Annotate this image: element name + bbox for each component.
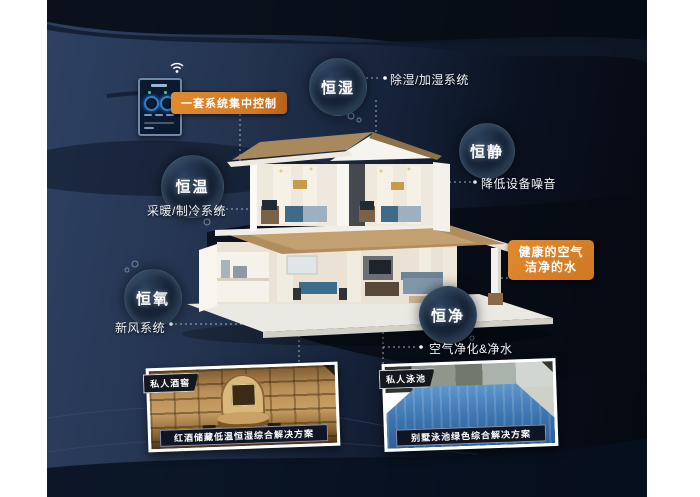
bubble-label: 恒静	[470, 141, 504, 162]
panel-dial-left	[144, 96, 159, 111]
panel-readout	[166, 114, 174, 116]
pool-tag: 私人泳池	[379, 368, 436, 389]
infographic-page: 一套系统集中控制 健康的空气 洁净的水 恒湿 恒静 恒温 恒氧 恒净 除湿/加湿…	[0, 0, 700, 497]
bubble-constant-quiet: 恒静	[459, 123, 515, 179]
panel-readout	[155, 114, 163, 116]
wifi-icon	[169, 60, 185, 74]
bubble-constant-humidity: 恒湿	[309, 58, 367, 116]
photo-corner-curl	[324, 365, 335, 376]
wine-tag: 私人酒窖	[143, 373, 200, 394]
panel-readout	[144, 114, 152, 116]
note-heating-cooling-system: 采暖/制冷系统	[147, 202, 226, 219]
callout-line-1: 健康的空气	[510, 245, 592, 260]
wine-art	[231, 383, 256, 406]
bubble-label: 恒湿	[321, 77, 355, 98]
healthy-air-water-callout: 健康的空气 洁净的水	[508, 240, 594, 280]
panel-led	[164, 91, 167, 94]
note-fresh-air-system: 新风系统	[115, 319, 165, 336]
callout-line-2: 洁净的水	[510, 260, 592, 275]
panel-divider	[144, 122, 174, 124]
panel-title-bar	[151, 84, 167, 87]
panel-led	[148, 91, 151, 94]
central-control-chip: 一套系统集中控制	[171, 92, 287, 114]
bubble-label: 恒净	[431, 305, 465, 326]
photo-wine-cellar: 红酒储藏低温恒湿综合解决方案 私人酒窖	[146, 362, 341, 453]
note-dehumidify-system: 除湿/加湿系统	[390, 71, 469, 88]
bubble-label: 恒氧	[136, 288, 170, 309]
photo-corner-curl	[542, 361, 553, 372]
content-canvas: 一套系统集中控制 健康的空气 洁净的水 恒湿 恒静 恒温 恒氧 恒净 除湿/加湿…	[47, 0, 647, 497]
panel-readout	[144, 127, 154, 129]
note-noise-reduction: 降低设备噪音	[481, 175, 556, 192]
bubble-constant-clean: 恒净	[419, 286, 477, 344]
note-air-water-purification: 空气净化&净水	[429, 340, 513, 357]
photo-private-pool: 别墅泳池绿色综合解决方案 私人泳池	[382, 358, 559, 452]
bubble-label: 恒温	[175, 176, 209, 197]
